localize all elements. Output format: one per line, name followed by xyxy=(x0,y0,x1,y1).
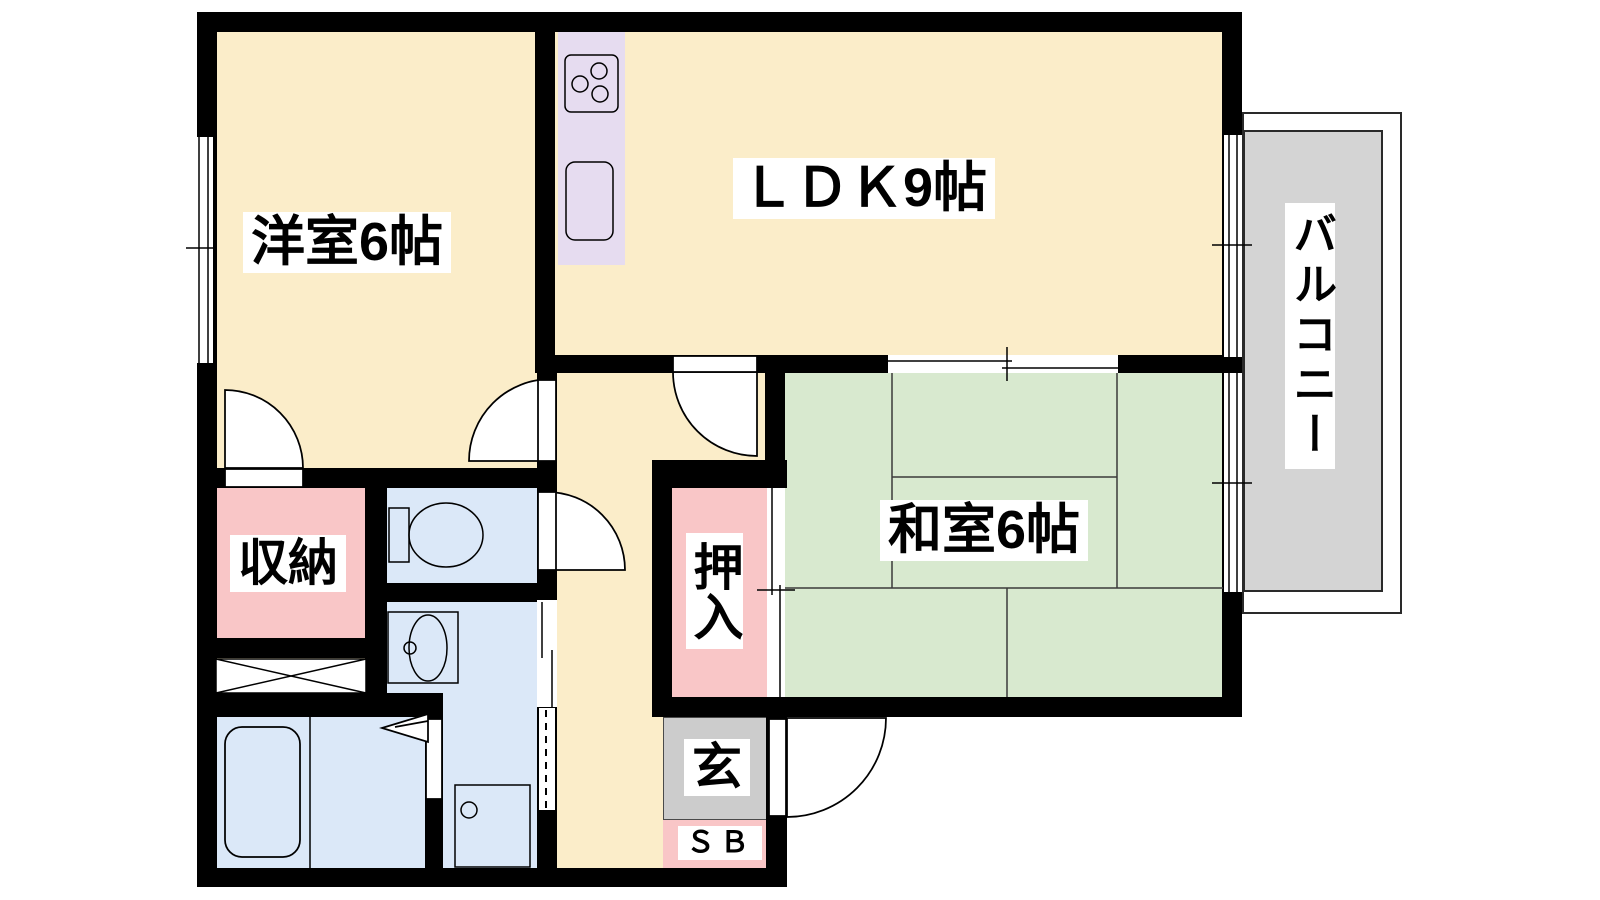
room-toilet xyxy=(387,488,537,583)
room-label-western: 洋室6帖 xyxy=(243,212,451,273)
wall-hall-west xyxy=(537,373,557,868)
room-label-storage: 収納 xyxy=(230,535,346,592)
wall-closet-left xyxy=(652,460,672,717)
kitchen-counter xyxy=(558,32,625,265)
wall-storage-south xyxy=(197,638,367,658)
wall-japanese-left xyxy=(765,373,785,488)
wall-entry-column xyxy=(766,717,787,887)
room-label-japanese: 和室6帖 xyxy=(880,500,1088,561)
wall-bath-north xyxy=(197,693,443,717)
wall-ldk-south xyxy=(535,355,1242,373)
floor-plan-canvas: 洋室6帖 ＬＤＫ9帖 和室6帖 収納 押入 玄 ＳＢ バルコニー xyxy=(0,0,1600,900)
room-label-closet: 押入 xyxy=(686,533,743,649)
wall-top xyxy=(197,12,1242,32)
wall-toilet-south xyxy=(365,583,557,602)
room-washroom-top xyxy=(387,602,537,695)
room-label-shoe-box: ＳＢ xyxy=(678,826,762,860)
room-label-ldk: ＬＤＫ9帖 xyxy=(733,158,995,219)
wall-bottom-left xyxy=(197,868,787,887)
room-label-balcony: バルコニー xyxy=(1285,203,1335,469)
wall-kitchen-divider xyxy=(535,12,555,373)
room-label-entrance: 玄 xyxy=(684,739,750,796)
room-washroom-strip xyxy=(443,695,537,868)
wall-left xyxy=(197,12,217,887)
room-bathroom xyxy=(217,717,425,868)
wall-bath-washroom-divider xyxy=(425,717,443,868)
wall-bottom-right xyxy=(652,697,1242,717)
wall-washroom-left xyxy=(365,583,387,717)
